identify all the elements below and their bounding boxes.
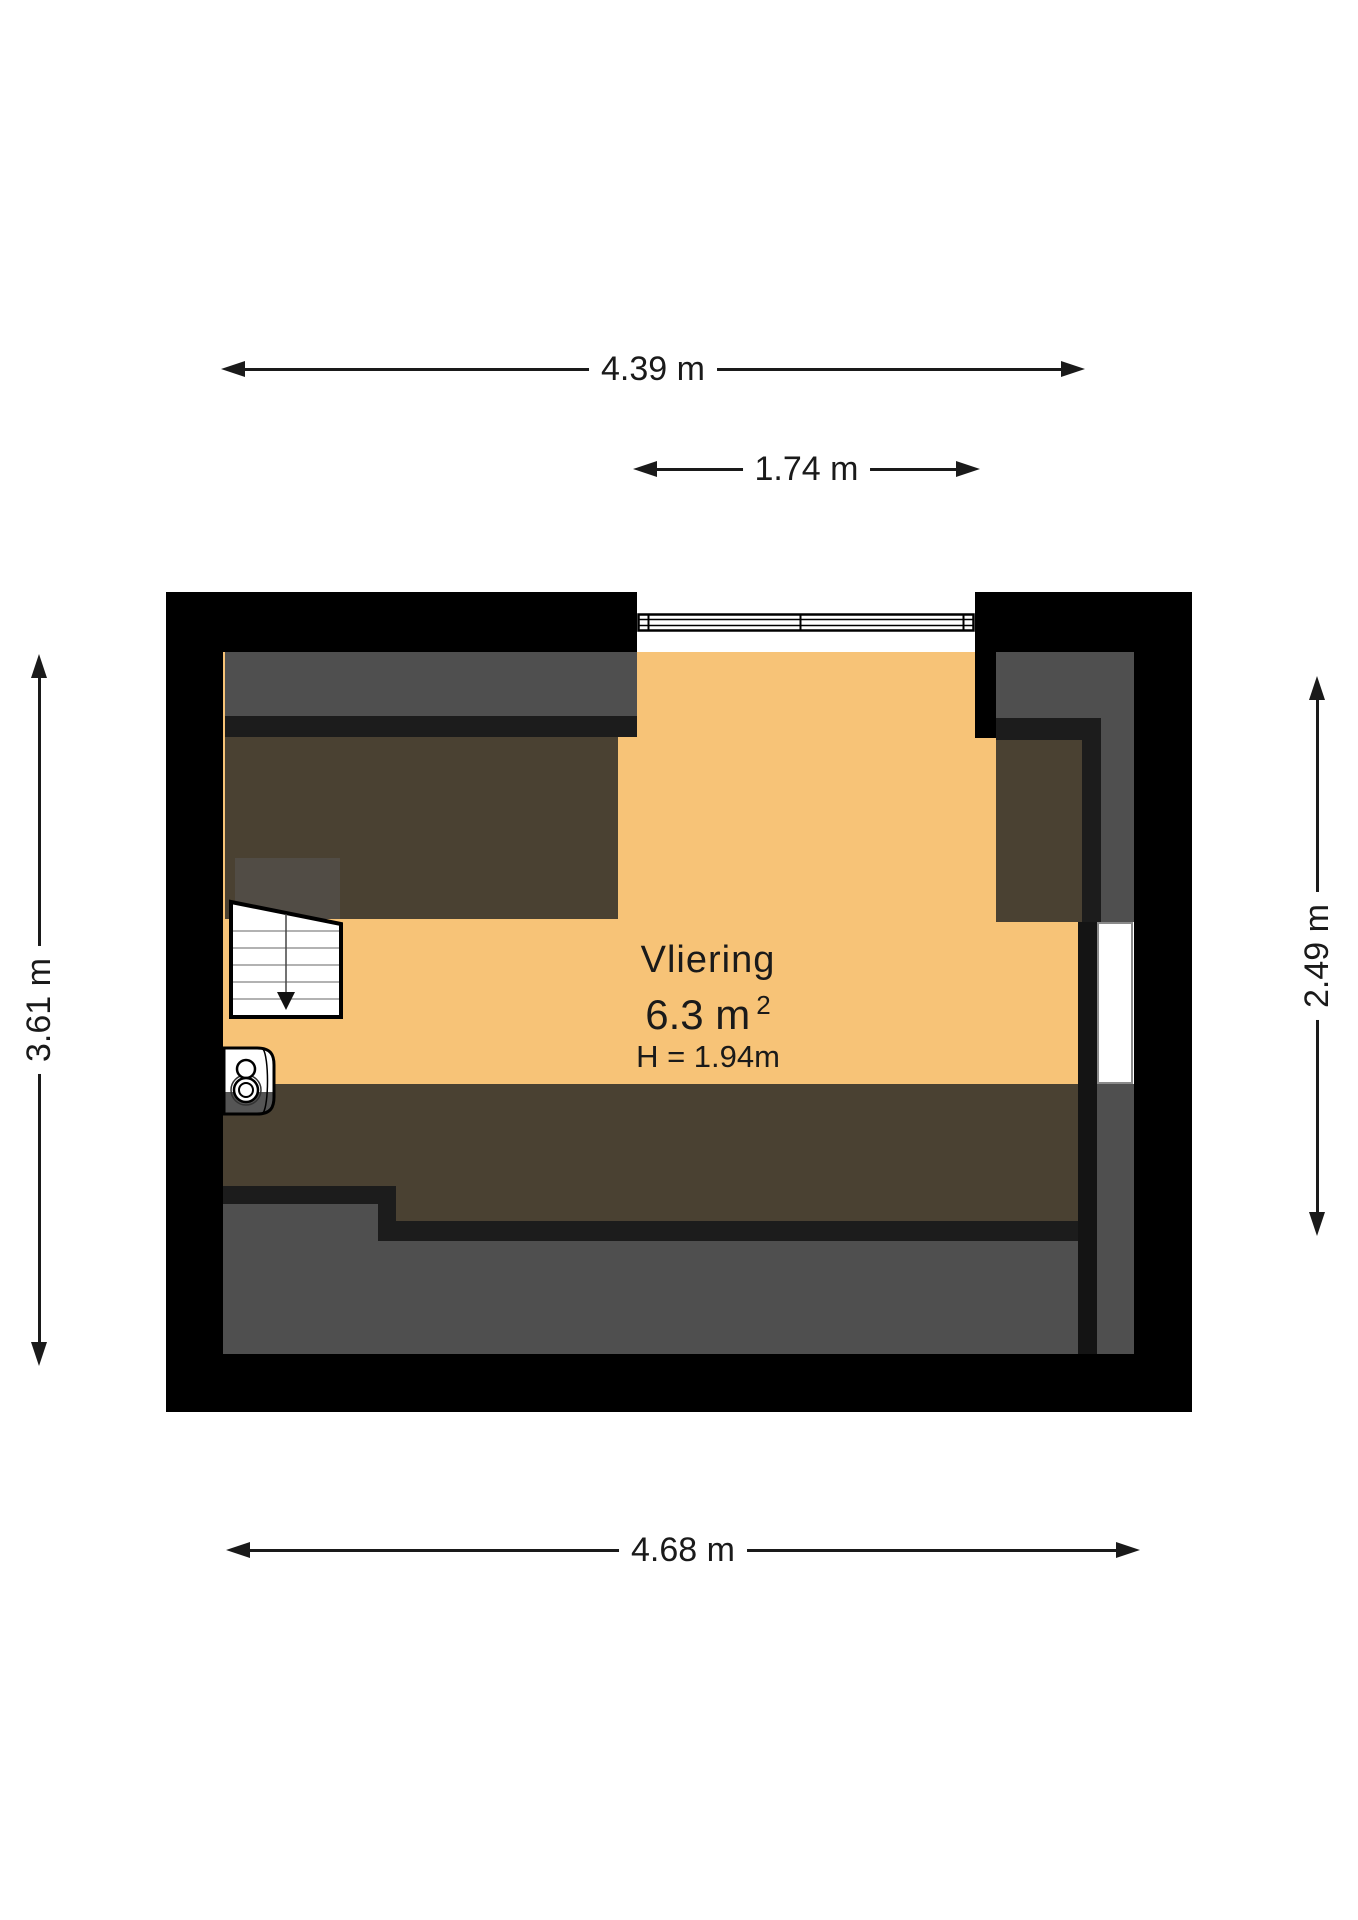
wall-opening	[1097, 922, 1133, 1084]
room-name: Vliering	[558, 938, 858, 982]
inner-wall-right	[1078, 922, 1097, 1354]
dimension-top-window: 1.74 m	[633, 448, 980, 492]
sloped-ceiling-band-right	[1097, 1084, 1134, 1354]
stairs-down-icon	[228, 898, 344, 1020]
low-headroom-area-bottom-a	[223, 1084, 1078, 1186]
ceiling-edge-line-top-right-v	[1082, 718, 1101, 922]
low-headroom-area-bottom-b	[396, 1186, 1078, 1221]
wall-left	[166, 592, 223, 1412]
ceiling-edge-line-bottom-a	[223, 1186, 378, 1204]
ceiling-edge-line-bottom-step	[378, 1186, 396, 1241]
sloped-ceiling-band-bottom-a	[223, 1204, 378, 1354]
dimension-right: 2.49 m	[1296, 676, 1340, 1236]
sloped-ceiling-band-top-left	[225, 650, 637, 716]
sloped-ceiling-band-bottom-b	[378, 1241, 1078, 1354]
wall-step-right-of-window	[975, 652, 996, 738]
dimension-label: 3.61 m	[20, 946, 58, 1074]
ceiling-edge-line-bottom-b	[396, 1221, 1078, 1241]
room-label: Vliering 6.3 m2 H = 1.94m	[558, 938, 858, 1076]
room-area: 6.3 m2	[558, 982, 858, 1038]
room-height: H = 1.94m	[558, 1038, 858, 1076]
dimension-bottom: 4.68 m	[226, 1529, 1140, 1573]
low-headroom-area-top-right	[996, 740, 1082, 922]
wall-right	[1134, 592, 1192, 1412]
wall-bottom	[166, 1354, 1192, 1412]
floorplan-page: 4.39 m 1.74 m 3.61 m 2.49 m 4.68 m	[0, 0, 1358, 1920]
water-heater-icon	[219, 1045, 281, 1119]
window-icon	[637, 613, 975, 632]
ceiling-edge-line-top-left	[225, 716, 637, 737]
dimension-label: 4.68 m	[619, 1531, 747, 1569]
dimension-label: 1.74 m	[743, 450, 871, 488]
wall-top-left-segment	[166, 592, 637, 652]
dimension-top-outer: 4.39 m	[221, 348, 1085, 392]
dimension-label: 4.39 m	[589, 350, 717, 388]
dimension-left: 3.61 m	[18, 654, 62, 1366]
dimension-label: 2.49 m	[1298, 892, 1336, 1020]
